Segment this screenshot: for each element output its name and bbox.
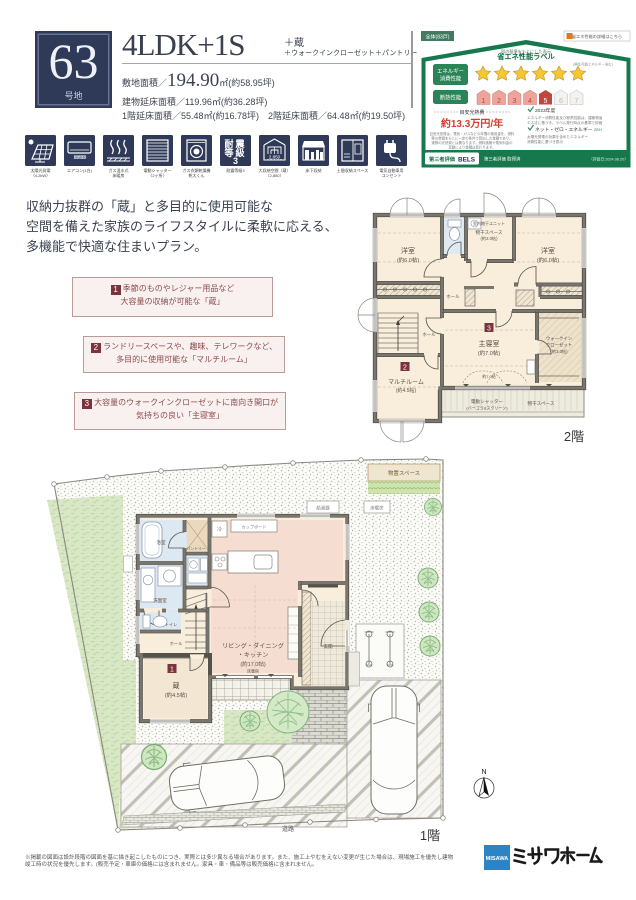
svg-text:1: 1 xyxy=(482,98,486,105)
svg-text:2: 2 xyxy=(403,365,407,372)
svg-text:エネ法に基づき、ラベル発行時点の基準で評価: エネ法に基づき、ラベル発行時点の基準で評価 xyxy=(527,120,603,125)
svg-text:クローゼット: クローゼット xyxy=(546,342,572,349)
svg-text:床下収納: 床下収納 xyxy=(306,167,322,173)
svg-text:(約6.0帖): (約6.0帖) xyxy=(397,256,419,264)
svg-text:消費性能に基づき表示: 消費性能に基づき表示 xyxy=(527,139,563,144)
svg-text:耐震等級3: 耐震等級3 xyxy=(226,167,245,173)
svg-text:パントリー: パントリー xyxy=(186,546,205,551)
svg-text:(再生可能エネルギー含む): (再生可能エネルギー含む) xyxy=(573,62,613,67)
svg-text:洋室: 洋室 xyxy=(401,246,415,255)
svg-text:洋室: 洋室 xyxy=(541,246,555,255)
svg-text:第三者評価 取得済: 第三者評価 取得済 xyxy=(484,156,521,163)
svg-text:(約17.0帖): (約17.0帖) xyxy=(240,660,266,668)
svg-text:マルチルーム: マルチルーム xyxy=(388,379,424,386)
svg-text:2: 2 xyxy=(497,98,501,105)
svg-text:2階: 2階 xyxy=(564,429,584,444)
svg-text:〈4.2kW〉: 〈4.2kW〉 xyxy=(31,173,50,178)
svg-text:ホール: ホール xyxy=(422,332,436,337)
svg-text:変動により金額は変わります。: 変動により金額は変わります。 xyxy=(448,145,495,150)
svg-text:目安光熱費は、電気・ガスなどの年間の使用量を、燃料: 目安光熱費は、電気・ガスなどの年間の使用量を、燃料 xyxy=(430,131,515,136)
svg-text:物置スペース: 物置スペース xyxy=(388,469,420,477)
svg-text:主寝室: 主寝室 xyxy=(479,339,500,348)
svg-text:〈2,850〉: 〈2,850〉 xyxy=(265,173,283,178)
svg-text:BELS: BELS xyxy=(458,157,476,164)
svg-text:2023年度: 2023年度 xyxy=(535,107,555,114)
svg-text:2,850: 2,850 xyxy=(269,155,281,160)
svg-text:エネルギー消費性能及び断熱性能は、建築物省: エネルギー消費性能及び断熱性能は、建築物省 xyxy=(527,115,603,120)
svg-text:ホール: ホール xyxy=(446,294,460,299)
svg-text:3: 3 xyxy=(487,326,491,333)
svg-text:床暖房: 床暖房 xyxy=(370,505,384,512)
svg-text:第三者評価: 第三者評価 xyxy=(429,155,456,163)
svg-text:冷: 冷 xyxy=(217,526,222,533)
svg-text:コンセント: コンセント xyxy=(382,173,402,178)
svg-text:目安光熱費: 目安光熱費 xyxy=(459,109,484,116)
svg-text:N: N xyxy=(481,769,486,776)
svg-text:(約3.0帖): (約3.0帖) xyxy=(551,348,569,355)
svg-text:カップボード: カップボード xyxy=(241,524,266,531)
svg-text:エアコン(1台): エアコン(1台) xyxy=(67,167,93,173)
svg-text:ネット・ゼロ・エネルギー ZEH: ネット・ゼロ・エネルギー ZEH xyxy=(535,126,602,133)
svg-text:約13.3万円/年: 約13.3万円/年 xyxy=(441,117,503,130)
svg-text:蔵: 蔵 xyxy=(173,681,180,690)
svg-text:(約7.0帖): (約7.0帖) xyxy=(478,349,500,357)
svg-text:エアコン: エアコン xyxy=(73,154,87,159)
svg-text:・キッチン: ・キッチン xyxy=(238,652,269,659)
svg-text:室内物干ユニット: 室内物干ユニット xyxy=(473,220,505,226)
svg-text:省エネ性能の詳細はこちら: 省エネ性能の詳細はこちら xyxy=(572,33,622,40)
svg-text:(約4.5帖): (約4.5帖) xyxy=(165,691,187,699)
svg-text:3: 3 xyxy=(233,156,238,166)
svg-text:省エネ性能ラベル: 省エネ性能ラベル xyxy=(496,52,555,61)
svg-text:4: 4 xyxy=(528,98,532,105)
svg-text:物干スペース: 物干スペース xyxy=(527,400,554,407)
svg-text:消費性能: 消費性能 xyxy=(440,75,462,83)
svg-text:約7.0帖: 約7.0帖 xyxy=(482,373,496,379)
svg-text:洗面室: 洗面室 xyxy=(153,597,167,604)
svg-text:(約4.5帖): (約4.5帖) xyxy=(396,387,417,394)
svg-text:全体(83戸): 全体(83戸) xyxy=(426,33,450,40)
svg-text:(約6.0帖): (約6.0帖) xyxy=(537,256,559,264)
svg-text:(約2.0帖): (約2.0帖) xyxy=(481,235,499,242)
svg-text:〈評価日:2024.08.20〉: 〈評価日:2024.08.20〉 xyxy=(589,157,628,162)
svg-text:断熱性能: 断熱性能 xyxy=(440,94,462,102)
svg-text:給湯器: 給湯器 xyxy=(316,505,330,512)
svg-text:(バーゴラ&スクリーン): (バーゴラ&スクリーン) xyxy=(466,405,508,411)
svg-text:7: 7 xyxy=(575,98,579,105)
svg-text:道路: 道路 xyxy=(282,825,294,833)
svg-text:トイレ: トイレ xyxy=(165,622,178,627)
svg-text:床暖房: 床暖房 xyxy=(113,172,125,178)
svg-text:土間収納スペース: 土間収納スペース xyxy=(337,167,369,173)
svg-text:ホール: ホール xyxy=(170,641,183,646)
svg-text:等の単価をもとに一定の条件で算出した金額であり、: 等の単価をもとに一定の条件で算出した金額であり、 xyxy=(431,136,512,141)
svg-text:〈2ヶ所〉: 〈2ヶ所〉 xyxy=(148,172,166,178)
svg-text:乾太くん: 乾太くん xyxy=(189,172,205,178)
svg-text:エネルギー: エネルギー xyxy=(437,68,464,75)
svg-text:1: 1 xyxy=(170,667,174,674)
svg-text:リビング・ダイニング: リビング・ダイニング xyxy=(222,642,284,650)
svg-text:6: 6 xyxy=(559,98,563,105)
svg-text:太陽光発電の効果を含めたエネルギー: 太陽光発電の効果を含めたエネルギー xyxy=(527,134,588,139)
svg-text:物干スペース: 物干スペース xyxy=(475,229,502,236)
svg-text:玄関: 玄関 xyxy=(323,643,333,650)
svg-text:3: 3 xyxy=(513,98,517,105)
svg-text:床暖房: 床暖房 xyxy=(247,668,259,674)
svg-text:MISAWA: MISAWA xyxy=(486,856,509,862)
svg-text:ウォークイン: ウォークイン xyxy=(546,335,573,342)
svg-text:1階: 1階 xyxy=(420,828,440,843)
svg-text:浴室: 浴室 xyxy=(156,539,166,546)
svg-text:実際の光熱費とは異なります。燃料価格や電気料金の: 実際の光熱費とは異なります。燃料価格や電気料金の xyxy=(431,140,513,145)
svg-text:電動シャッター: 電動シャッター xyxy=(471,398,504,405)
svg-text:5: 5 xyxy=(544,98,548,105)
